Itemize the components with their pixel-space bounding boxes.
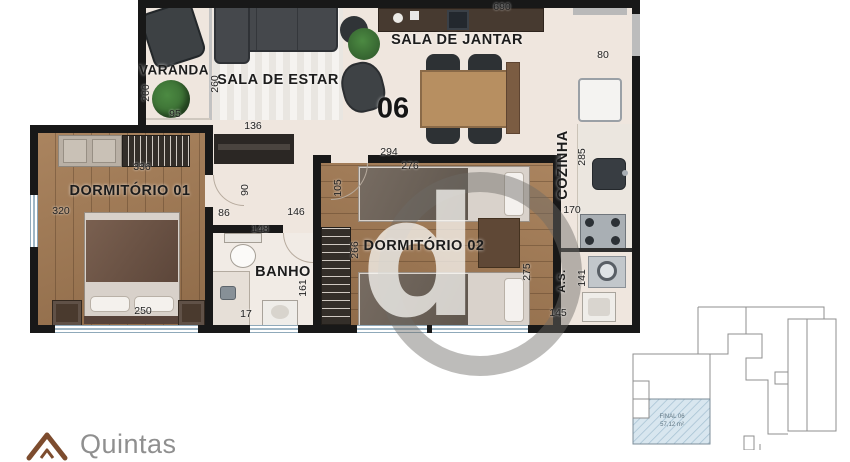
dim-105: 105 [332, 179, 344, 197]
stove-burner-4 [611, 236, 620, 245]
keyplan: FINAL 06 57,12 m² [628, 294, 850, 450]
dim-80: 80 [597, 49, 609, 61]
dim-690: 690 [493, 1, 511, 13]
dim-170: 170 [563, 204, 581, 216]
wardrobe-2 [321, 227, 351, 325]
label-unit-number: 06 [377, 93, 409, 126]
dim-95: 95 [169, 108, 181, 120]
sideboard-art [447, 10, 469, 30]
dim-146: 146 [287, 206, 305, 218]
dim-17: 17 [240, 308, 252, 320]
bed-double-headboard [84, 316, 180, 324]
dim-136: 136 [244, 120, 262, 132]
label-area-servico: A.S. [556, 269, 568, 292]
label-banho: BANHO [255, 264, 311, 280]
dim-320: 320 [52, 205, 70, 217]
dim-200: 200 [140, 84, 152, 102]
sideboard-box [410, 11, 419, 20]
window-dorm1 [55, 325, 198, 333]
kitchen-faucet [622, 170, 628, 176]
shower-head [220, 286, 236, 300]
label-dormitorio1: DORMITÓRIO 01 [70, 183, 191, 199]
dim-294: 294 [380, 146, 398, 158]
dim-148: 148 [251, 223, 269, 235]
dim-275: 275 [521, 263, 533, 281]
dim-90: 90 [239, 184, 251, 196]
dim-141: 141 [576, 269, 588, 287]
dim-276: 276 [401, 160, 419, 172]
sala-plant [348, 28, 380, 60]
brand-house-icon [24, 426, 70, 462]
nightstand-1 [52, 300, 82, 326]
keyplan-area-label: 57,12 m² [660, 422, 684, 428]
floorplan-canvas: d VARANDA SALA DE ESTAR SALA DE JANTAR C… [0, 0, 850, 450]
stove-burner-1 [585, 218, 594, 227]
dim-266: 266 [349, 241, 361, 259]
laundry-tub-basin [588, 298, 610, 316]
service-door-opening [632, 14, 640, 56]
dim-145: 145 [549, 307, 567, 319]
stove-burner-2 [611, 218, 620, 227]
wall-dorm1-right-a [205, 133, 213, 175]
dim-260: 260 [209, 75, 221, 93]
wall-dorm2-top-a [321, 155, 331, 163]
dim-336: 336 [133, 161, 151, 173]
dim-285: 285 [576, 148, 588, 166]
dining-table [420, 70, 508, 128]
sofa-chaise [214, 2, 250, 64]
bed-double-blanket [86, 220, 178, 282]
watermark-letter: d [361, 162, 479, 354]
toilet-bowl [230, 244, 256, 268]
label-dormitorio2: DORMITÓRIO 02 [364, 238, 485, 254]
nightstand-2 [178, 300, 205, 326]
wood-console [506, 62, 520, 134]
wall-banho-top [205, 225, 283, 233]
label-sala-jantar: SALA DE JANTAR [391, 32, 523, 48]
brand-name: Quintas [80, 429, 177, 460]
shower-divider-h [213, 271, 250, 272]
sideboard-vase [393, 13, 403, 23]
fridge [578, 78, 622, 122]
washer-door [597, 261, 617, 281]
window-banho [250, 325, 298, 333]
wall-dorm1-top [30, 125, 213, 133]
kitchen-sink [592, 158, 626, 190]
vanity-bowl [271, 305, 289, 319]
dim-250: 250 [134, 305, 152, 317]
varanda-glass-divider [209, 0, 212, 120]
tv-bench-top [218, 144, 290, 150]
wardrobe-1-hangers [122, 135, 190, 167]
dim-161: 161 [297, 279, 309, 297]
kitchen-top-cabinet [573, 8, 627, 15]
keyplan-unit-label: FINAL 06 [659, 414, 685, 420]
bed-double-pillow-1 [90, 296, 130, 312]
label-varanda: VARANDA [139, 63, 209, 78]
dim-86: 86 [218, 207, 230, 219]
window-dorm1-left [30, 195, 38, 247]
label-cozinha: COZINHA [555, 130, 571, 200]
stove-burner-3 [585, 236, 594, 245]
wall-top [140, 0, 640, 8]
wardrobe-1-shelf-b [92, 139, 116, 163]
wall-banho-right [313, 155, 321, 333]
wardrobe-1-shelf-a [63, 139, 87, 163]
label-sala-estar: SALA DE ESTAR [217, 72, 339, 88]
